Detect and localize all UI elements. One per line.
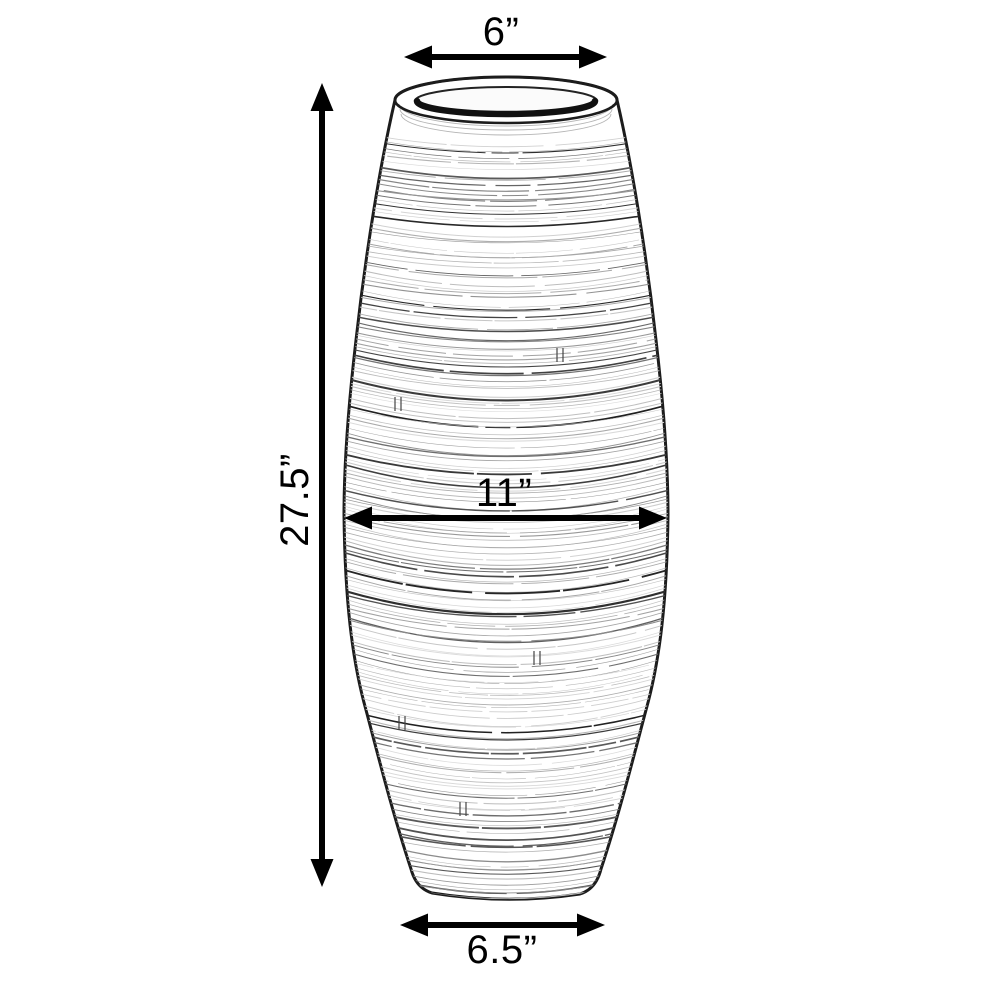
arrow-left-head — [404, 46, 432, 69]
diagram-canvas: 6” 27.5” 11” 6.5” — [0, 0, 1000, 1000]
arrow-right-head — [577, 914, 605, 937]
max-width-label: 11” — [476, 471, 532, 515]
arrow-right-head — [579, 46, 607, 69]
arrow-up-head — [311, 83, 334, 111]
product-dimension-diagram: 6” 27.5” 11” 6.5” — [0, 0, 1000, 1000]
height-label: 27.5” — [273, 453, 317, 547]
base-width-label: 6.5” — [467, 928, 538, 972]
arrow-down-head — [311, 859, 334, 887]
top-width-label: 6” — [483, 10, 520, 54]
arrow-left-head — [400, 914, 428, 937]
